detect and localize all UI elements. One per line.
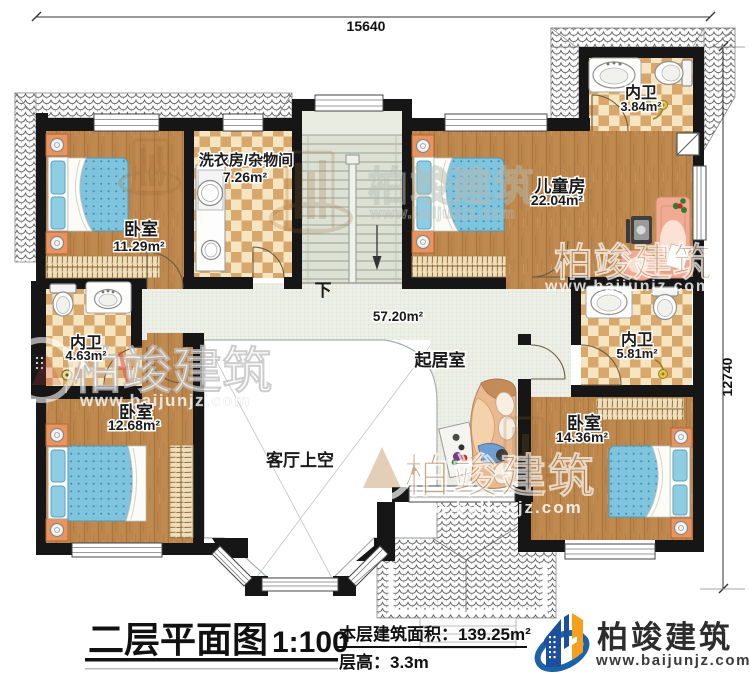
svg-text:15640: 15640 bbox=[347, 18, 386, 34]
svg-text:1:100: 1:100 bbox=[272, 626, 349, 659]
svg-text:起居室: 起居室 bbox=[414, 350, 466, 370]
svg-text:12.68m²: 12.68m² bbox=[108, 417, 160, 433]
svg-text:洗衣房/杂物间: 洗衣房/杂物间 bbox=[199, 151, 293, 169]
svg-text:柏竣建筑: 柏竣建筑 bbox=[404, 450, 596, 502]
svg-text:卧室: 卧室 bbox=[124, 219, 158, 239]
svg-text:www.baijunjz.com: www.baijunjz.com bbox=[595, 652, 750, 669]
svg-text:本层建筑面积：139.25m²: 本层建筑面积：139.25m² bbox=[339, 624, 531, 644]
svg-text:www.baijunjz.com: www.baijunjz.com bbox=[369, 205, 515, 222]
svg-text:14.36m²: 14.36m² bbox=[556, 429, 608, 445]
svg-text:www.baijunjz.com: www.baijunjz.com bbox=[403, 498, 583, 517]
svg-text:柏竣建筑: 柏竣建筑 bbox=[597, 620, 733, 655]
svg-text:二层平面图: 二层平面图 bbox=[88, 619, 268, 660]
svg-text:5.81m²: 5.81m² bbox=[616, 346, 658, 361]
svg-text:22.04m²: 22.04m² bbox=[531, 192, 583, 208]
svg-text:www.baijunjz.com: www.baijunjz.com bbox=[79, 391, 251, 410]
svg-text:层高：3.3m: 层高：3.3m bbox=[339, 652, 429, 672]
svg-text:3.84m²: 3.84m² bbox=[620, 99, 662, 114]
svg-text:下: 下 bbox=[315, 281, 332, 300]
svg-text:12740: 12740 bbox=[719, 357, 735, 396]
svg-text:7.26m²: 7.26m² bbox=[223, 169, 268, 185]
svg-text:4.63m²: 4.63m² bbox=[65, 348, 107, 363]
svg-text:www.baijunjz.com: www.baijunjz.com bbox=[544, 278, 712, 295]
svg-text:57.20m²: 57.20m² bbox=[373, 309, 424, 324]
svg-text:客厅上空: 客厅上空 bbox=[265, 450, 334, 470]
svg-text:柏竣建筑: 柏竣建筑 bbox=[368, 165, 536, 209]
svg-text:11.29m²: 11.29m² bbox=[113, 238, 165, 254]
